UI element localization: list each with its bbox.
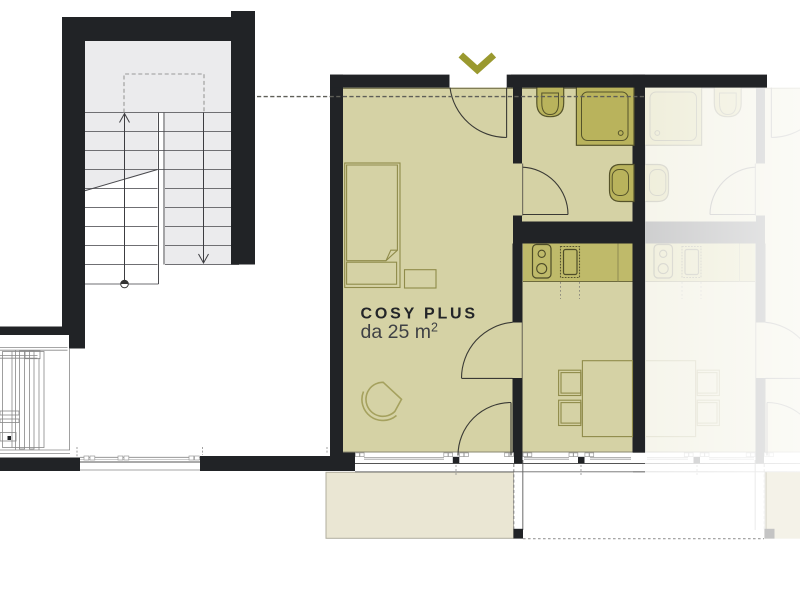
- svg-text:da 25 m2: da 25 m2: [361, 321, 438, 344]
- svg-text:COSY PLUS: COSY PLUS: [361, 306, 478, 323]
